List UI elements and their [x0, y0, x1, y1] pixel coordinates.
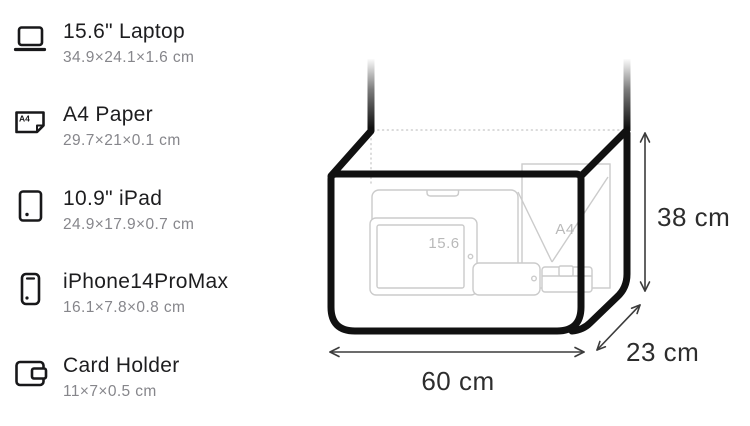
width-arrow — [330, 348, 584, 357]
ipad-sketch — [370, 218, 477, 295]
height-dimension-label: 38 cm — [657, 202, 730, 232]
laptop-sketch-label: 15.6 — [428, 235, 459, 252]
bag-diagram: A4 15.6 — [0, 0, 750, 426]
capacity-diagram: 15.6" Laptop 34.9×24.1×1.6 cm A4 A4 Pape… — [0, 0, 750, 426]
bag-straps — [371, 59, 627, 131]
a4-sketch-label: A4 — [555, 221, 574, 238]
iphone-sketch — [473, 263, 540, 295]
interior-sketches: A4 15.6 — [370, 164, 610, 295]
bag-top-left-edge — [331, 131, 371, 176]
height-arrow — [641, 133, 650, 291]
depth-dimension-label: 23 cm — [626, 337, 699, 367]
width-dimension-label: 60 cm — [421, 366, 494, 396]
